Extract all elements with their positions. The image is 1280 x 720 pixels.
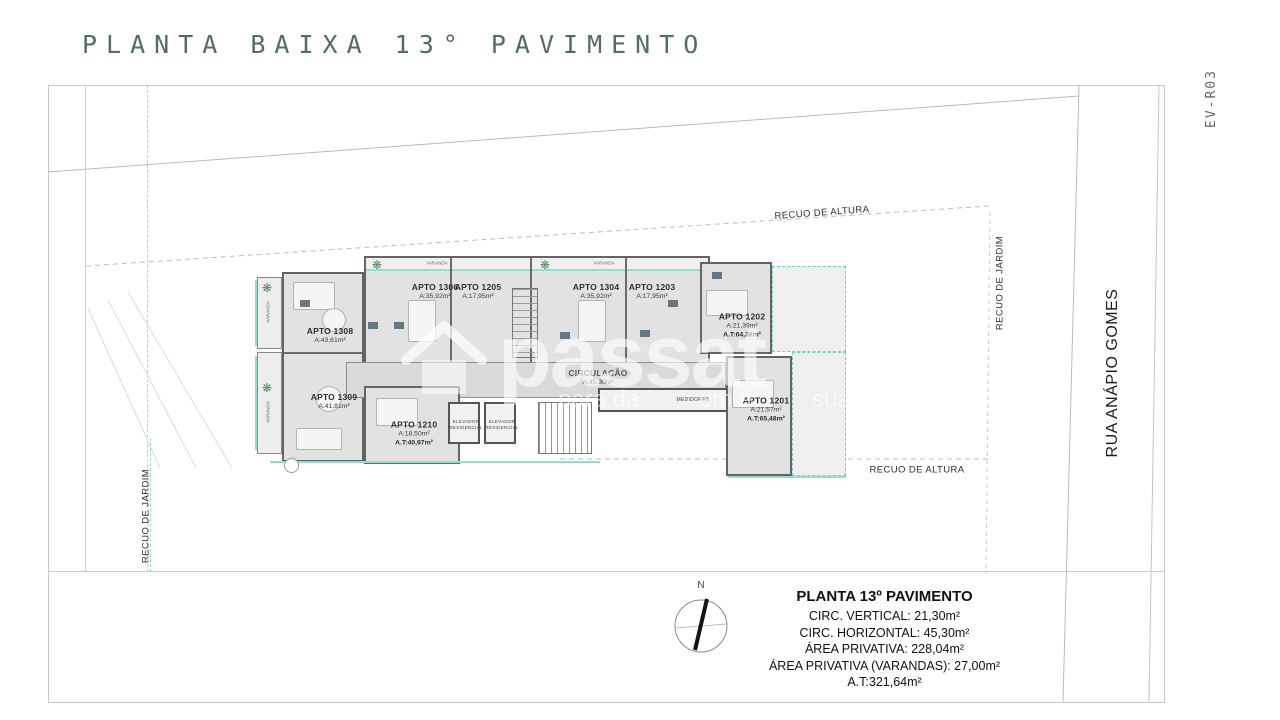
apto-1205-label: APTO 1205 A:17,95m² xyxy=(455,282,502,302)
elevator-label: RESIDENCIAL xyxy=(485,425,518,430)
apto-1306-label: APTO 1306 A:35,92m² xyxy=(412,282,459,302)
apto-1309-area: A:41,81m² xyxy=(311,403,358,412)
bath-fixture xyxy=(712,272,722,279)
apto-1201-total: A.T:65,48m² xyxy=(743,416,790,425)
apto-1306-area: A:35,92m² xyxy=(412,293,459,302)
elevator-label: ELEVADOR xyxy=(453,419,480,424)
apto-1205-area: A:17,95m² xyxy=(455,293,502,302)
apto-1210-area: A:18,50m² xyxy=(391,431,438,440)
balcony-accent-bottom xyxy=(728,476,846,478)
apto-1304-area: A:35,92m² xyxy=(573,293,620,302)
summary-line: ÁREA PRIVATIVA: 228,04m² xyxy=(742,641,1027,658)
summary-title: PLANTA 13º PAVIMENTO xyxy=(742,588,1027,605)
apto-1309-label: APTO 1309 A:41,81m² xyxy=(311,392,358,412)
bath-fixture xyxy=(368,322,378,329)
apto-1304-name: APTO 1304 xyxy=(573,282,620,293)
watermark-tagline-fragment: em e xyxy=(699,386,752,414)
manhole-mark xyxy=(284,458,299,473)
elevator-label: RESIDENCIAL xyxy=(449,425,482,430)
apto-1308-label: APTO 1308 A:43,61m² xyxy=(307,326,354,346)
summary-line: CIRC. VERTICAL: 21,30m² xyxy=(742,608,1027,625)
plant-icon: ❋ xyxy=(372,259,382,271)
balcony-accent-top xyxy=(366,269,708,271)
apto-1210-name: APTO 1210 xyxy=(391,420,438,431)
elevator-label: ELEVADOR xyxy=(489,419,516,424)
apto-1203-label: APTO 1203 A:17,95m² xyxy=(629,282,676,302)
bath-fixture xyxy=(300,300,310,307)
balcony-accent xyxy=(255,280,257,346)
compass-needle xyxy=(695,599,707,650)
balcony-accent-bottom xyxy=(270,461,600,463)
watermark-tagline-fragment: sua vid xyxy=(812,386,888,414)
watermark-tagline: para da em e sua vid xyxy=(558,386,888,414)
apto-1308-area: A:43,61m² xyxy=(307,337,354,346)
summary-line: ÁREA PRIVATIVA (VARANDAS): 27,00m² xyxy=(742,658,1027,675)
plant-icon: ❋ xyxy=(262,282,272,294)
apto-1306-name: APTO 1306 xyxy=(412,282,459,293)
varanda-label: VARANDA xyxy=(266,301,271,322)
apto-1203-name: APTO 1203 xyxy=(629,282,676,293)
apto-1210-total: A.T:40,97m² xyxy=(391,440,438,449)
floorplan-sheet: PLANTA BAIXA 13° PAVIMENTO EV-R03 RECUO … xyxy=(0,0,1280,720)
summary-line: CIRC. HORIZONTAL: 45,30m² xyxy=(742,625,1027,642)
apto-1304-label: APTO 1304 A:35,92m² xyxy=(573,282,620,302)
elevator-1: ELEVADOR RESIDENCIAL xyxy=(448,402,480,444)
terrace-1202 xyxy=(772,266,846,352)
terrace-1201 xyxy=(792,352,846,476)
apto-1205-name: APTO 1205 xyxy=(455,282,502,293)
apto-1309-name: APTO 1309 xyxy=(311,392,358,403)
apto-1308-name: APTO 1308 xyxy=(307,326,354,337)
watermark-tagline-fragment: para da xyxy=(558,386,639,414)
wall-divider xyxy=(284,352,362,354)
area-summary: PLANTA 13º PAVIMENTO CIRC. VERTICAL: 21,… xyxy=(742,588,1027,691)
compass-north-label: N xyxy=(697,580,704,591)
plant-icon: ❋ xyxy=(540,259,550,271)
elevator-2: ELEVADOR RESIDENCIAL xyxy=(484,402,516,444)
plant-icon: ❋ xyxy=(262,382,272,394)
varanda-label: VARANDA xyxy=(426,261,447,266)
balcony-accent xyxy=(255,356,257,450)
compass: N xyxy=(666,576,736,668)
varanda-label: VARANDA xyxy=(266,401,271,422)
watermark-house-icon xyxy=(398,312,490,400)
varanda-label: VARANDA xyxy=(593,261,614,266)
furniture-sofa xyxy=(296,428,342,450)
apto-1203-area: A:17,95m² xyxy=(629,293,676,302)
apto-1210-label: APTO 1210 A:18,50m² A.T:40,97m² xyxy=(391,420,438,449)
summary-line: A.T:321,64m² xyxy=(742,674,1027,691)
